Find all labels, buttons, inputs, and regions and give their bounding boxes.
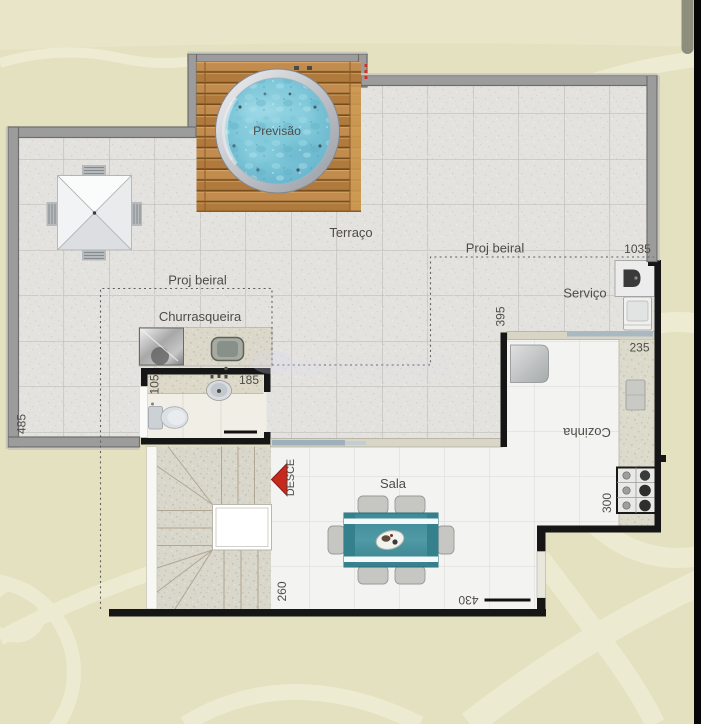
svg-text:Terraço: Terraço: [329, 225, 372, 240]
svg-text:105: 105: [148, 374, 162, 394]
svg-text:395: 395: [494, 306, 508, 326]
svg-text:235: 235: [629, 341, 649, 355]
svg-text:Sala: Sala: [380, 476, 407, 491]
svg-text:485: 485: [15, 414, 29, 434]
svg-text:Serviço: Serviço: [563, 286, 606, 301]
svg-text:Proj beiral: Proj beiral: [466, 241, 525, 256]
svg-text:260: 260: [275, 581, 289, 601]
svg-text:1035: 1035: [624, 242, 651, 256]
svg-text:Churrasqueira: Churrasqueira: [159, 309, 242, 324]
svg-text:DESCE: DESCE: [285, 459, 297, 496]
svg-text:185: 185: [239, 373, 259, 387]
svg-text:430: 430: [458, 593, 478, 607]
svg-text:Cozinha: Cozinha: [562, 425, 610, 440]
svg-text:Proj beiral: Proj beiral: [168, 273, 227, 288]
svg-text:Previsão: Previsão: [253, 124, 301, 138]
svg-text:300: 300: [600, 493, 614, 513]
